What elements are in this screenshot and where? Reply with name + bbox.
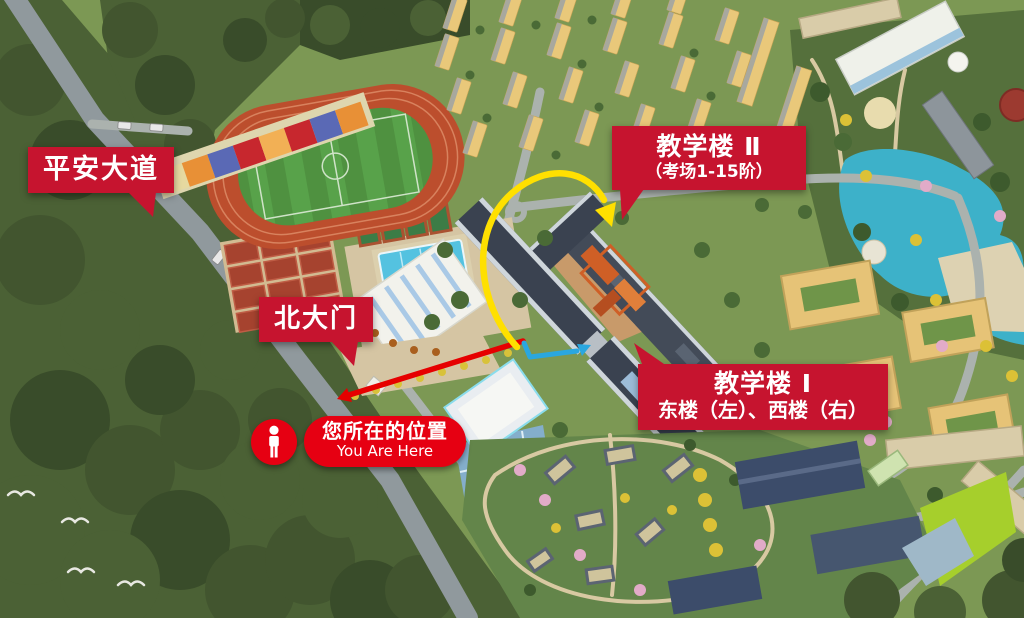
label-teaching-building-2-sub: （考场1-15阶） — [624, 162, 794, 182]
person-icon — [264, 425, 284, 459]
label-teaching-building-2-title: 教学楼 Ⅱ — [624, 132, 794, 162]
label-teaching-building-2: 教学楼 Ⅱ （考场1-15阶） — [612, 126, 806, 190]
campus-map-canvas — [0, 0, 1024, 618]
label-tail — [634, 343, 666, 365]
you-are-here-label: 您所在的位置 You Are Here — [304, 416, 466, 467]
campus-map: 平安大道 教学楼 Ⅱ （考场1-15阶） 北大门 教学楼 Ⅰ 东楼（左）、西楼（… — [0, 0, 1024, 618]
label-pingan-avenue-text: 平安大道 — [43, 154, 159, 185]
you-are-here-text-en: You Are Here — [322, 443, 448, 460]
label-teaching-building-1-sub: 东楼（左）、西楼（右） — [652, 399, 874, 423]
label-tail — [331, 341, 361, 367]
label-north-gate: 北大门 — [259, 297, 373, 342]
label-tail — [616, 189, 646, 221]
you-are-here-marker — [251, 419, 297, 465]
gym-dome — [948, 52, 968, 72]
round-building — [1000, 89, 1024, 121]
label-teaching-building-1-title: 教学楼 Ⅰ — [652, 369, 874, 399]
label-pingan-avenue: 平安大道 — [28, 147, 174, 193]
label-tail — [126, 192, 158, 218]
label-teaching-building-1: 教学楼 Ⅰ 东楼（左）、西楼（右） — [638, 364, 888, 430]
label-north-gate-text: 北大门 — [274, 304, 358, 334]
sand-circle — [864, 97, 896, 129]
you-are-here-text-cn: 您所在的位置 — [322, 420, 448, 443]
